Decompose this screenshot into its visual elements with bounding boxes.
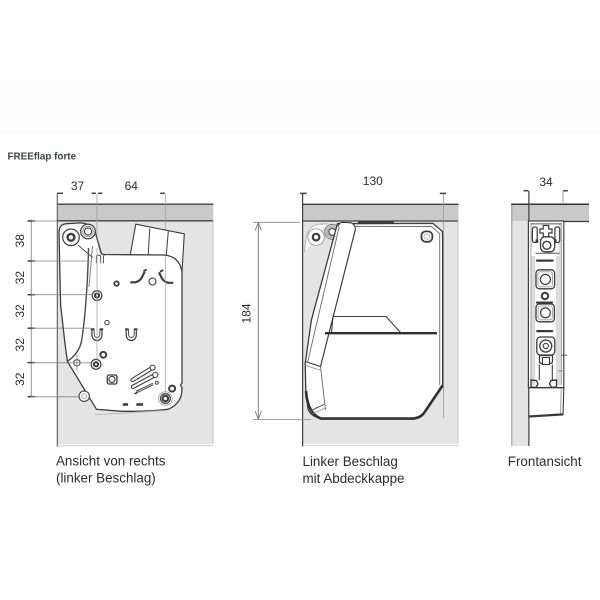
svg-text:(linker Beschlag): (linker Beschlag) xyxy=(56,471,156,486)
svg-text:32: 32 xyxy=(13,271,27,285)
svg-text:64: 64 xyxy=(125,179,139,193)
svg-text:Frontansicht: Frontansicht xyxy=(508,454,582,469)
svg-text:184: 184 xyxy=(240,303,254,323)
svg-text:FREEflap forte: FREEflap forte xyxy=(8,151,77,162)
svg-text:32: 32 xyxy=(13,338,27,352)
svg-text:34: 34 xyxy=(539,175,553,189)
svg-text:32: 32 xyxy=(13,372,27,386)
svg-text:Ansicht von rechts: Ansicht von rechts xyxy=(56,454,166,469)
svg-text:130: 130 xyxy=(363,174,383,188)
svg-text:Linker Beschlag: Linker Beschlag xyxy=(303,454,398,469)
svg-text:32: 32 xyxy=(13,304,27,318)
svg-text:mit Abdeckkappe: mit Abdeckkappe xyxy=(303,471,405,486)
svg-text:38: 38 xyxy=(13,234,27,248)
svg-text:37: 37 xyxy=(71,179,85,193)
